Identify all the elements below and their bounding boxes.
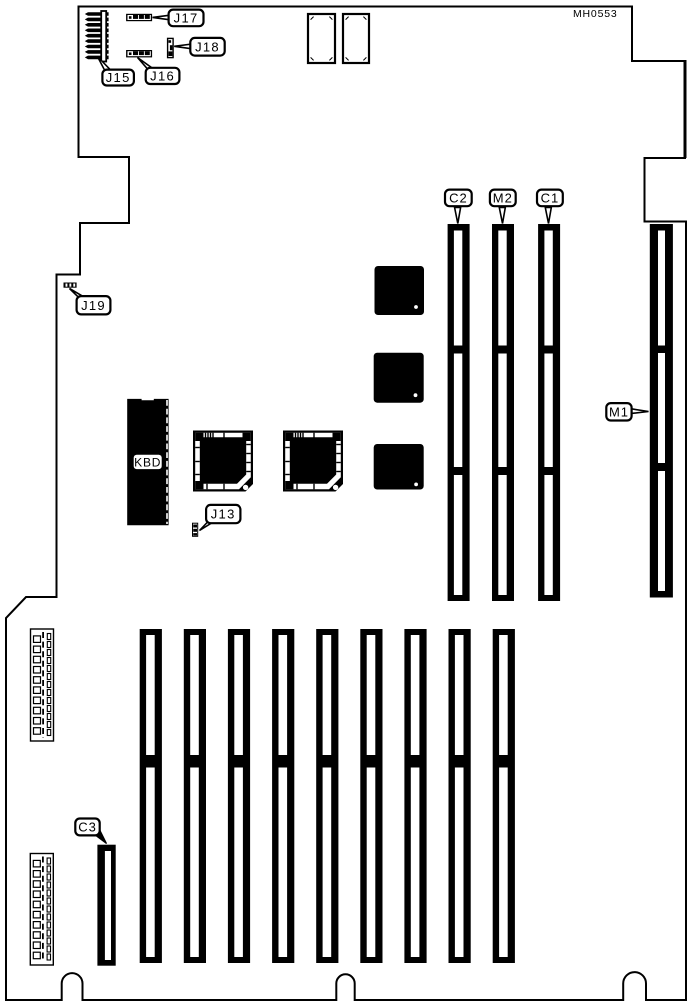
svg-text:J19: J19 <box>81 298 106 313</box>
svg-text:J18: J18 <box>195 39 220 54</box>
svg-text:M1: M1 <box>609 404 629 419</box>
svg-text:C2: C2 <box>449 191 468 206</box>
svg-text:J16: J16 <box>150 69 175 84</box>
svg-text:M2: M2 <box>493 191 513 206</box>
svg-text:C1: C1 <box>541 191 560 206</box>
svg-text:J15: J15 <box>106 70 131 85</box>
svg-text:J13: J13 <box>211 507 236 522</box>
svg-text:MH0553: MH0553 <box>573 8 618 20</box>
svg-text:KBD: KBD <box>134 455 161 469</box>
svg-text:J17: J17 <box>174 11 199 26</box>
svg-text:C3: C3 <box>78 820 97 835</box>
